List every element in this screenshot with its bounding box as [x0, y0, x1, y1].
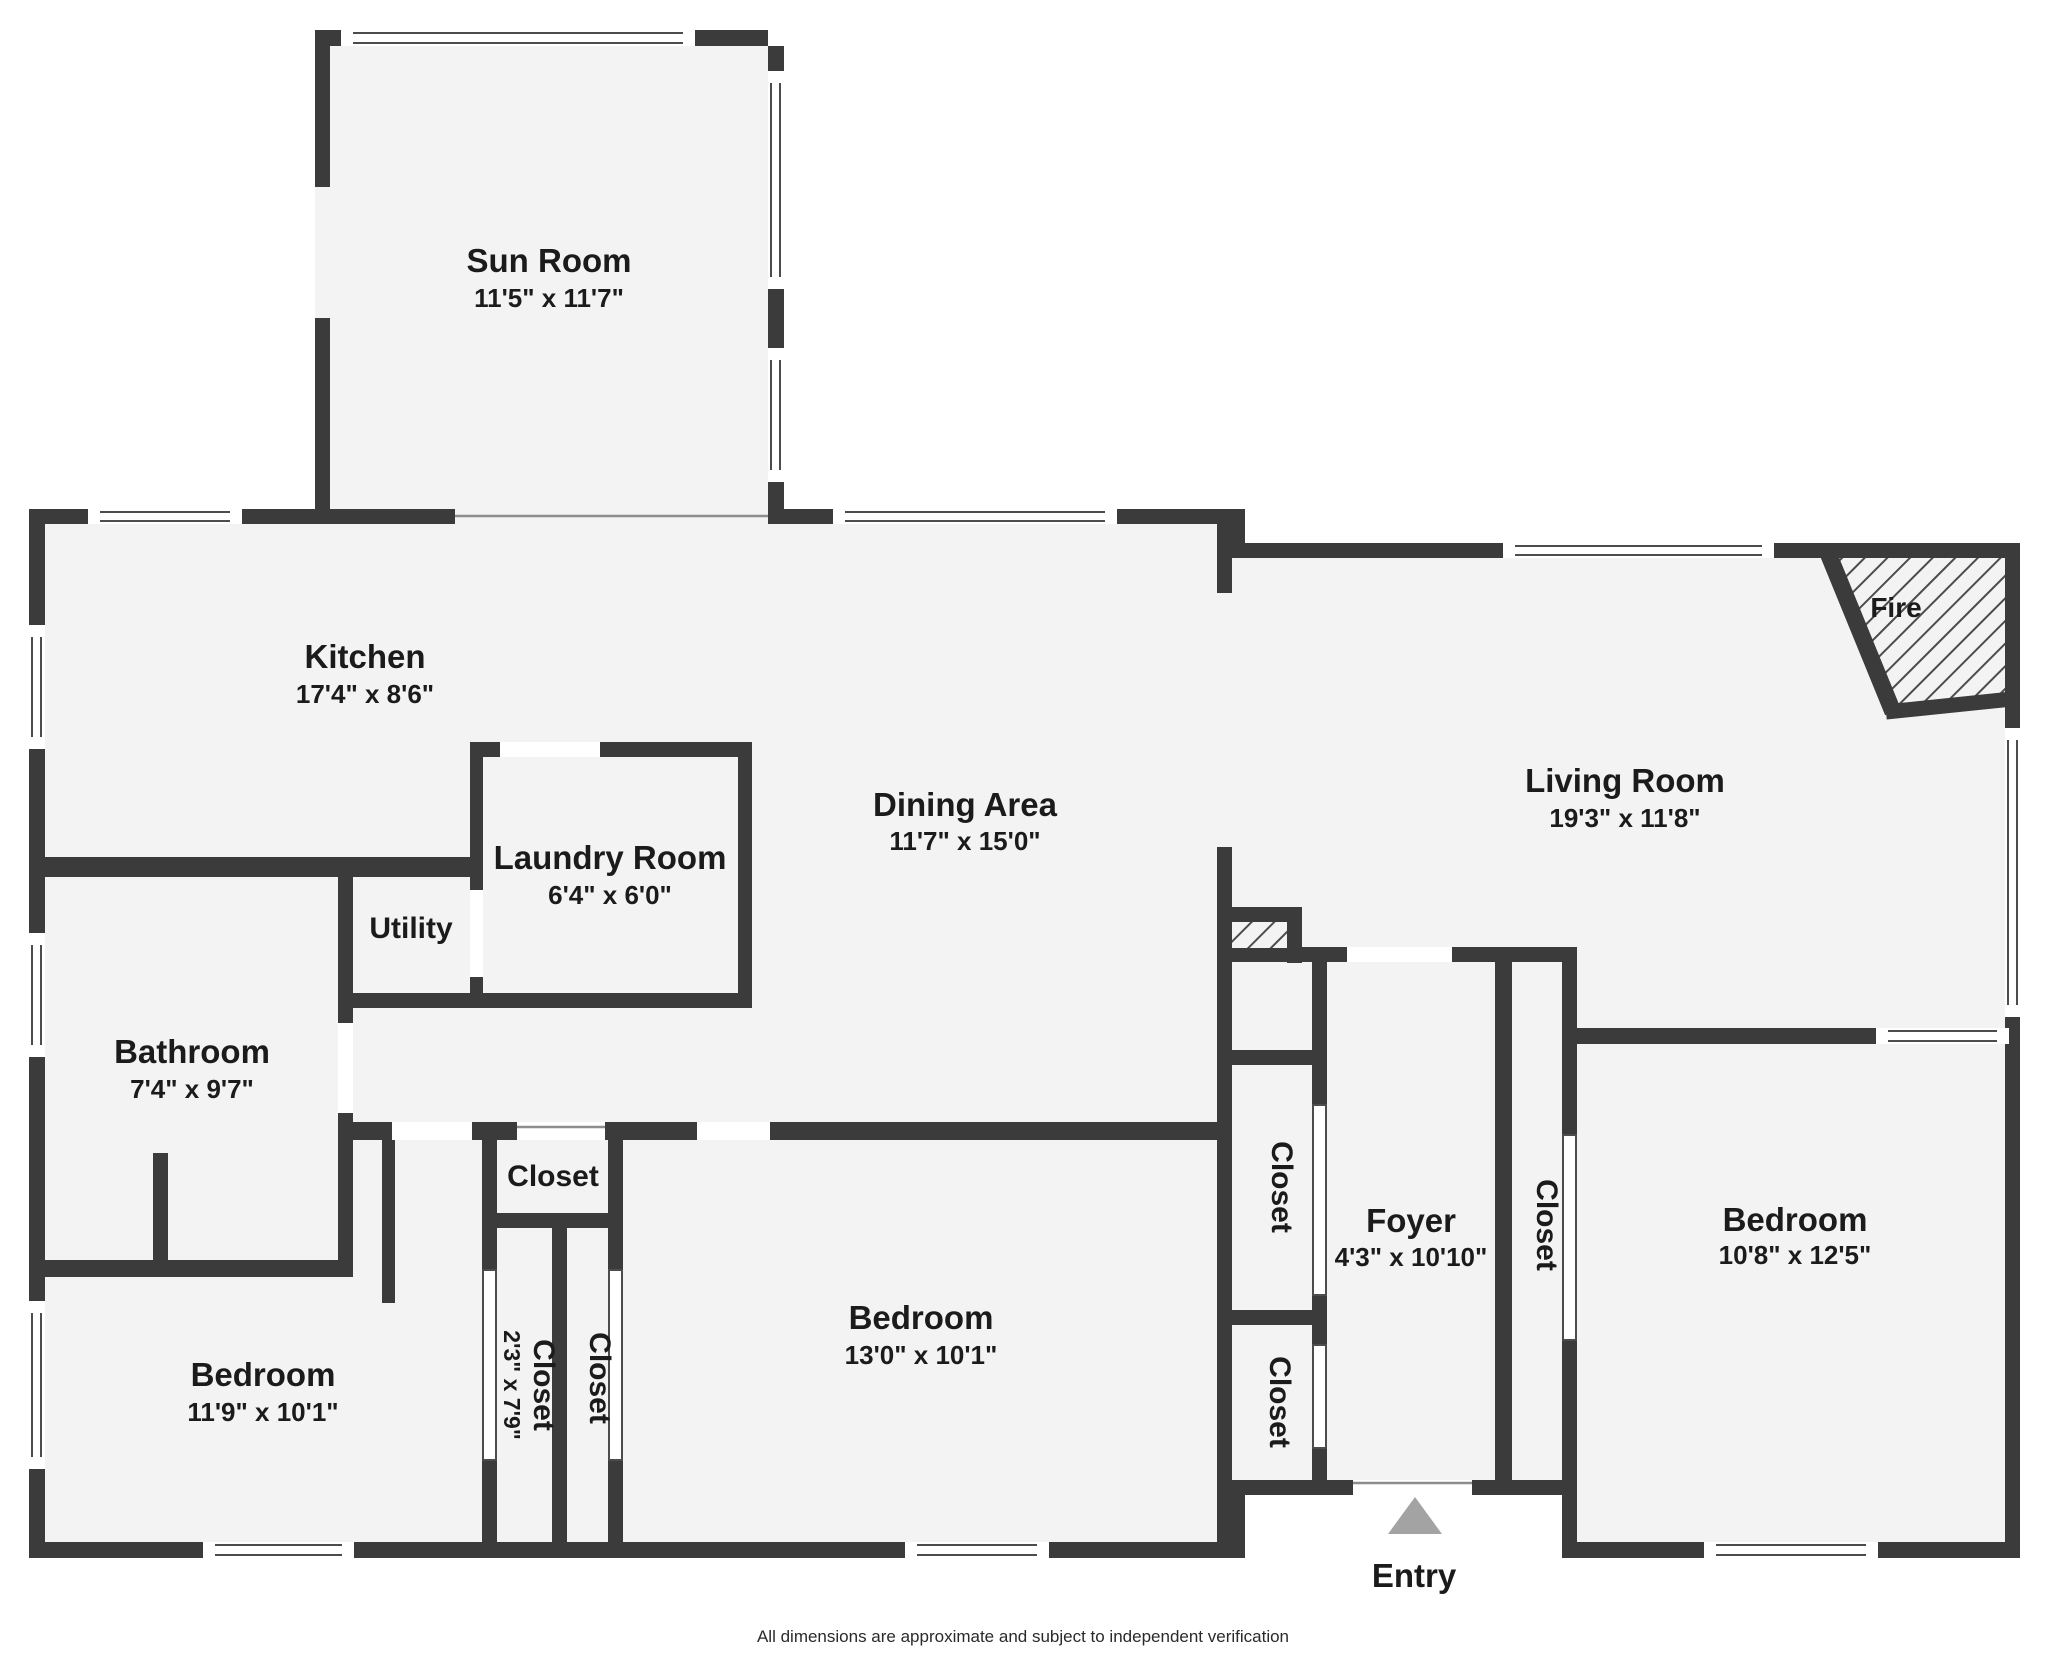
- window: [2005, 728, 2020, 1017]
- wall: [482, 1140, 497, 1270]
- wall: [768, 277, 784, 360]
- door-gap: [1347, 947, 1452, 962]
- wall: [608, 1140, 623, 1270]
- sliding-door: [1313, 1105, 1326, 1295]
- wall: [770, 1122, 1232, 1140]
- entry-door-opening: [1353, 1480, 1472, 1495]
- window: [29, 1301, 45, 1469]
- floor-plan: Fire: [0, 0, 2046, 1653]
- wall: [605, 1122, 697, 1140]
- closet-foyer-right-label: Closet: [1530, 1179, 1563, 1271]
- wall: [1037, 1542, 1245, 1558]
- door-gap: [470, 890, 483, 977]
- sliding-door: [1563, 1135, 1576, 1340]
- closet-foyer-lower-label: Closet: [1263, 1356, 1296, 1448]
- wall: [1232, 1050, 1327, 1065]
- wall: [338, 993, 752, 1008]
- bedroom-right-label: Bedroom: [1723, 1201, 1868, 1238]
- closet-left-a-dims: 2'3" x 7'9": [499, 1330, 525, 1440]
- floor-plan-page: Fire: [0, 0, 2046, 1653]
- wall: [738, 742, 752, 1008]
- wall: [1217, 947, 1347, 962]
- wall: [1562, 1340, 1577, 1558]
- wall: [470, 742, 500, 757]
- sliding-door: [1313, 1345, 1326, 1448]
- wall: [342, 1542, 917, 1558]
- wall: [1229, 1495, 1245, 1558]
- wall: [1232, 1480, 1353, 1495]
- bedroom-right-dims: 10'8" x 12'5": [1719, 1240, 1872, 1270]
- wall: [350, 1122, 392, 1140]
- sliding-door: [483, 1270, 496, 1460]
- wall: [1452, 947, 1577, 962]
- wall: [2005, 543, 2020, 740]
- entry-marker: Entry: [1372, 1497, 1457, 1594]
- wall: [1312, 962, 1327, 1105]
- wall: [1866, 1542, 2020, 1558]
- wall: [482, 1460, 497, 1542]
- wall: [29, 1542, 215, 1558]
- window: [1503, 543, 1774, 558]
- sun-room-dims: 11'5" x 11'7": [474, 283, 624, 313]
- wall: [382, 1140, 395, 1303]
- dining-label: Dining Area: [873, 786, 1058, 823]
- bedroom-middle-label: Bedroom: [849, 1299, 994, 1336]
- laundry-dims: 6'4" x 6'0": [548, 880, 672, 910]
- door-gap: [697, 1122, 770, 1140]
- door-gap: [338, 1023, 353, 1113]
- living-dims: 19'3" x 11'8": [1549, 803, 1700, 833]
- wall: [29, 509, 45, 637]
- bedroom-middle-dims: 13'0" x 10'1": [845, 1340, 998, 1370]
- wall: [153, 1153, 168, 1277]
- wall: [1232, 1310, 1327, 1325]
- bedroom-left-label: Bedroom: [191, 1356, 336, 1393]
- wall: [29, 737, 45, 945]
- window: [341, 30, 695, 46]
- closet-left-b-label: Closet: [583, 1332, 616, 1424]
- window: [1876, 1028, 2009, 1044]
- window: [768, 71, 784, 289]
- hall-closet-label: Closet: [507, 1160, 599, 1193]
- wall: [29, 857, 470, 877]
- wall: [1562, 1028, 1888, 1044]
- bathroom-dims: 7'4" x 9'7": [130, 1074, 254, 1104]
- wall: [1495, 962, 1512, 1495]
- living-label: Living Room: [1525, 762, 1725, 799]
- closet-foyer-upper-label: Closet: [1265, 1141, 1298, 1233]
- window: [768, 348, 784, 482]
- entry-arrow-icon: [1388, 1497, 1442, 1534]
- closet-opening: [517, 1122, 605, 1140]
- wall: [1562, 1542, 1716, 1558]
- wall: [1217, 543, 1515, 558]
- bedroom-left-dims: 11'9" x 10'1": [187, 1397, 338, 1427]
- door-gap: [500, 742, 600, 757]
- wall: [1762, 543, 2020, 558]
- sun-room-label: Sun Room: [467, 242, 632, 279]
- wall: [600, 742, 752, 757]
- wall: [315, 46, 330, 187]
- bathroom-label: Bathroom: [114, 1033, 270, 1070]
- window: [203, 1542, 354, 1558]
- foyer-label: Foyer: [1366, 1202, 1456, 1239]
- window: [905, 1542, 1049, 1558]
- foyer-dims: 4'3" x 10'10": [1335, 1242, 1488, 1272]
- laundry-label: Laundry Room: [494, 839, 727, 876]
- closet-left-a-label: Closet: [527, 1339, 560, 1431]
- wall: [1217, 558, 1232, 593]
- wall: [482, 1213, 623, 1228]
- utility-label: Utility: [369, 912, 453, 945]
- wall: [683, 30, 768, 46]
- wall: [1472, 1480, 1577, 1495]
- wall: [472, 1122, 517, 1140]
- window: [1704, 1542, 1878, 1558]
- wall: [470, 757, 483, 890]
- door-gap: [392, 1122, 472, 1140]
- window: [833, 509, 1117, 524]
- wall: [230, 509, 455, 524]
- chimney-hatch-box: [1232, 922, 1287, 948]
- kitchen-dims: 17'4" x 8'6": [296, 679, 434, 709]
- wall: [338, 877, 353, 1023]
- entry-label: Entry: [1372, 1557, 1457, 1594]
- window: [29, 625, 45, 749]
- wall: [608, 1460, 623, 1542]
- window: [29, 933, 45, 1057]
- window: [88, 509, 242, 524]
- dining-dims: 11'7" x 15'0": [889, 826, 1040, 856]
- wall: [2005, 1005, 2020, 1558]
- footer-disclaimer: All dimensions are approximate and subje…: [757, 1627, 1289, 1646]
- fireplace-label: Fire: [1870, 592, 1921, 623]
- wall: [29, 1260, 353, 1277]
- kitchen-label: Kitchen: [304, 638, 425, 675]
- wall: [315, 318, 330, 509]
